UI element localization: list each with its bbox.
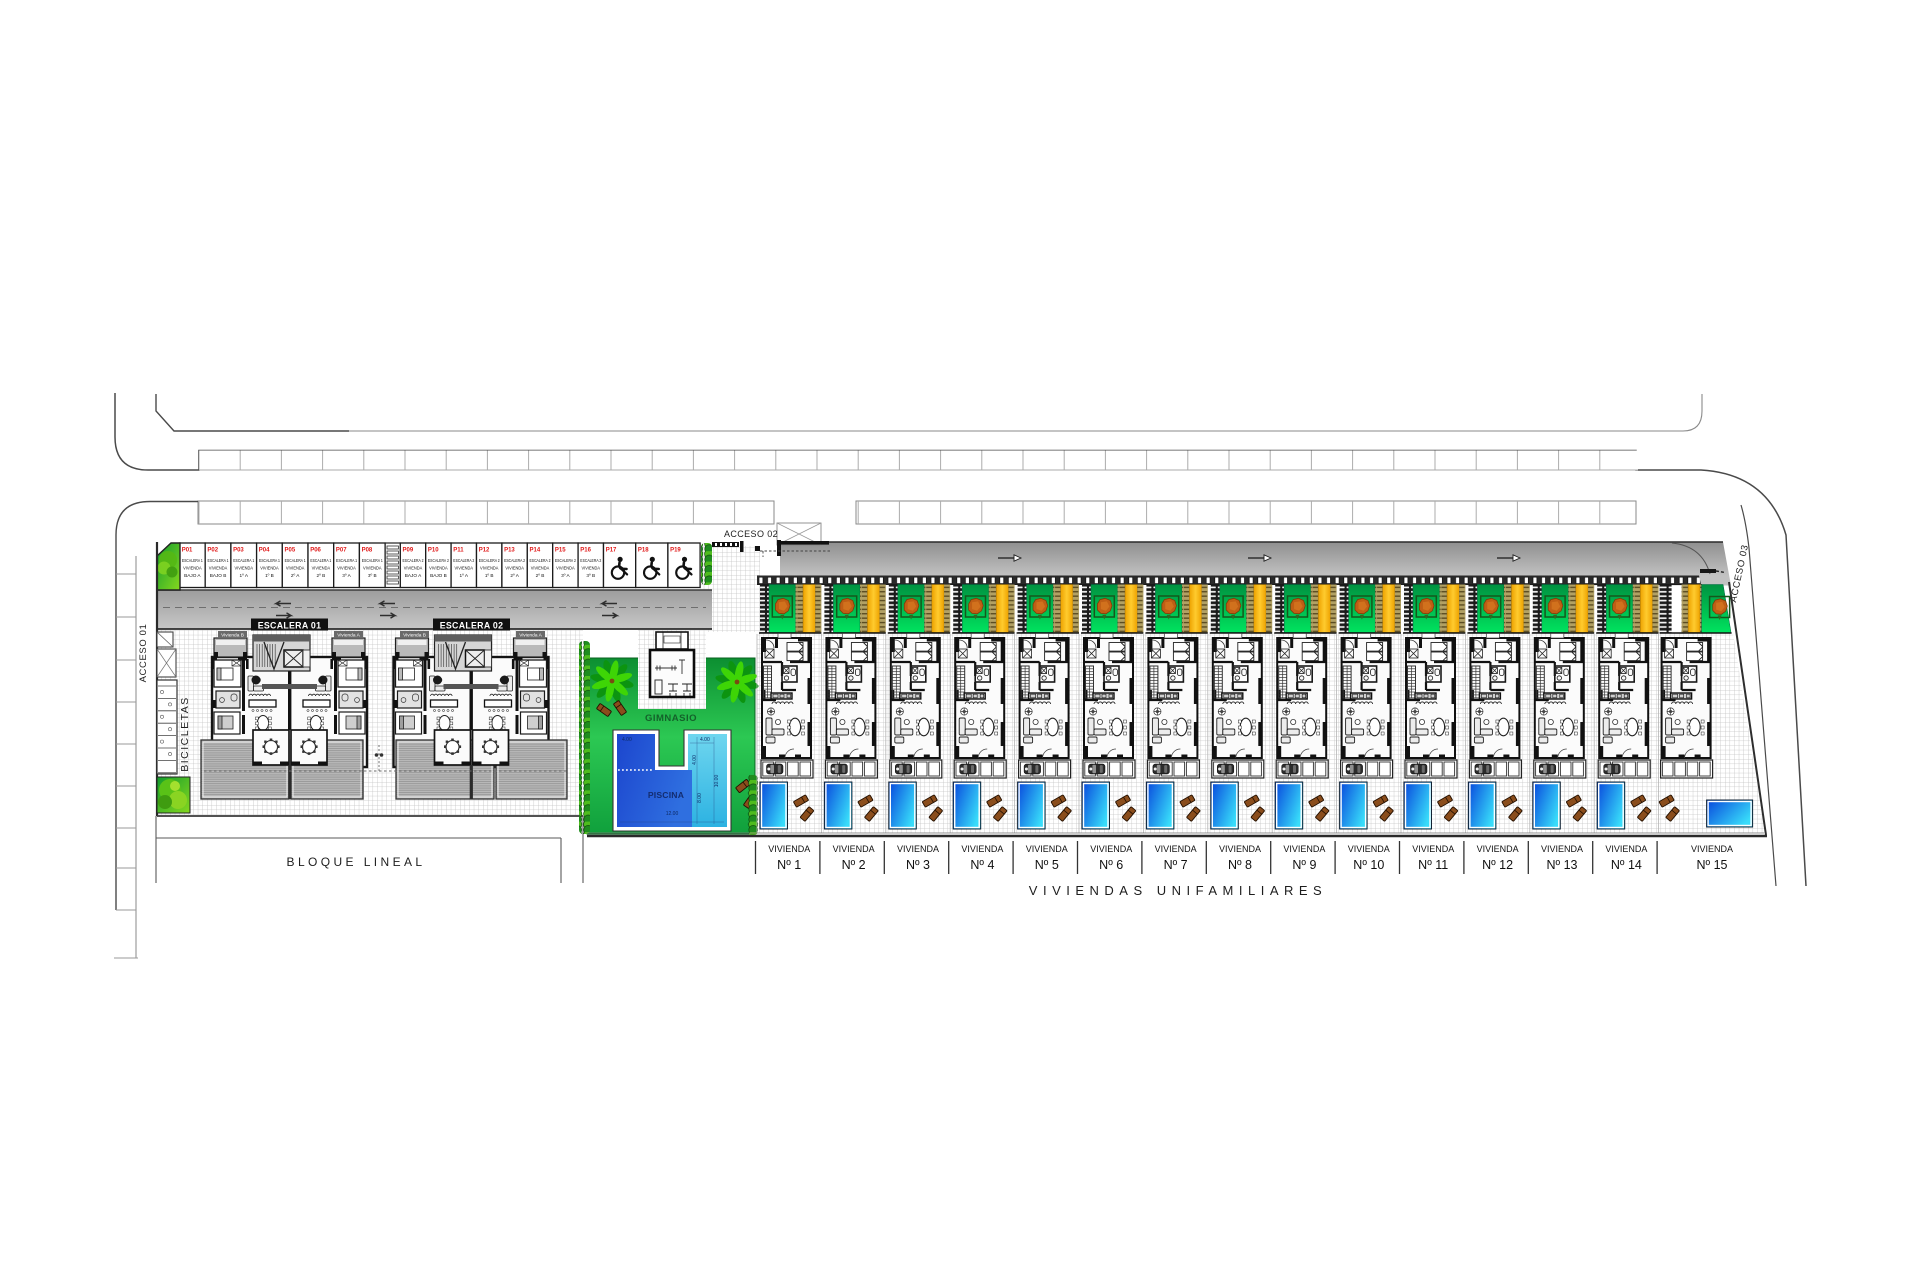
svg-text:P01: P01: [182, 548, 193, 554]
svg-text:P16: P16: [580, 548, 591, 554]
svg-text:10.00: 10.00: [714, 775, 720, 788]
svg-text:P11: P11: [453, 548, 464, 554]
svg-text:VIVIENDA: VIVIENDA: [337, 566, 356, 571]
svg-text:Nº 4: Nº 4: [970, 858, 994, 872]
svg-text:Nº 7: Nº 7: [1164, 858, 1188, 872]
svg-text:4.00: 4.00: [692, 755, 698, 765]
svg-text:BICICLETAS: BICICLETAS: [179, 696, 191, 772]
svg-text:1º A: 1º A: [240, 573, 249, 578]
svg-text:ESCALERA 2: ESCALERA 2: [479, 558, 500, 563]
svg-text:VIVIENDA: VIVIENDA: [1691, 844, 1733, 854]
svg-text:Nº 5: Nº 5: [1035, 858, 1059, 872]
svg-text:Nº 12: Nº 12: [1482, 858, 1513, 872]
svg-text:Nº 6: Nº 6: [1099, 858, 1123, 872]
svg-text:VIVIENDA: VIVIENDA: [1477, 844, 1519, 854]
svg-text:2º A: 2º A: [510, 573, 519, 578]
svg-text:VIVIENDA: VIVIENDA: [183, 566, 202, 571]
svg-text:VIVIENDA: VIVIENDA: [1605, 844, 1647, 854]
svg-text:GIMNASIO: GIMNASIO: [645, 713, 697, 724]
svg-text:Vivienda A: Vivienda A: [519, 633, 542, 639]
svg-text:ESCALERA 1: ESCALERA 1: [233, 558, 254, 563]
svg-text:ESCALERA 1: ESCALERA 1: [336, 558, 357, 563]
svg-text:P02: P02: [207, 548, 218, 554]
svg-text:P13: P13: [504, 548, 515, 554]
svg-text:ESCALERA 1: ESCALERA 1: [362, 558, 383, 563]
svg-text:P04: P04: [259, 548, 270, 554]
svg-text:VIVIENDA: VIVIENDA: [363, 566, 382, 571]
svg-text:ESCALERA 2: ESCALERA 2: [530, 558, 551, 563]
svg-text:P17: P17: [606, 548, 617, 554]
svg-text:1º B: 1º B: [265, 573, 274, 578]
svg-text:VIVIENDA: VIVIENDA: [1541, 844, 1583, 854]
svg-text:ACCESO 01: ACCESO 01: [138, 624, 149, 683]
svg-text:VIVIENDA: VIVIENDA: [833, 844, 875, 854]
svg-text:VIVIENDA: VIVIENDA: [312, 566, 331, 571]
svg-text:VIVIENDA: VIVIENDA: [235, 566, 254, 571]
svg-text:PISCINA: PISCINA: [648, 790, 684, 800]
svg-text:BAJO B: BAJO B: [430, 573, 447, 578]
svg-text:ESCALERA 1: ESCALERA 1: [285, 558, 306, 563]
svg-text:Vivienda B: Vivienda B: [403, 633, 426, 639]
svg-text:VIVIENDA: VIVIENDA: [1155, 844, 1197, 854]
svg-text:ESCALERA 2: ESCALERA 2: [580, 558, 601, 563]
svg-text:2º B: 2º B: [536, 573, 545, 578]
svg-text:ESCALERA 02: ESCALERA 02: [440, 620, 504, 630]
svg-text:BLOQUE LINEAL: BLOQUE LINEAL: [287, 855, 426, 869]
svg-text:Nº 15: Nº 15: [1697, 858, 1728, 872]
svg-text:3º B: 3º B: [368, 573, 377, 578]
svg-text:Nº 2: Nº 2: [842, 858, 866, 872]
svg-text:P06: P06: [310, 548, 321, 554]
svg-text:Nº 1: Nº 1: [777, 858, 801, 872]
svg-text:ESCALERA 2: ESCALERA 2: [428, 558, 449, 563]
svg-text:VIVIENDA: VIVIENDA: [1219, 844, 1261, 854]
svg-text:8.00: 8.00: [697, 793, 703, 803]
svg-text:P12: P12: [479, 548, 490, 554]
svg-text:VIVIENDA: VIVIENDA: [531, 566, 550, 571]
svg-text:ACCESO 03: ACCESO 03: [1728, 544, 1751, 604]
svg-text:1º B: 1º B: [485, 573, 494, 578]
svg-text:Nº 3: Nº 3: [906, 858, 930, 872]
svg-text:3º A: 3º A: [561, 573, 570, 578]
svg-text:VIVIENDA: VIVIENDA: [1090, 844, 1132, 854]
svg-text:P10: P10: [428, 548, 439, 554]
svg-text:P05: P05: [285, 548, 296, 554]
svg-text:ESCALERA 2: ESCALERA 2: [403, 558, 424, 563]
svg-text:2º B: 2º B: [316, 573, 325, 578]
svg-text:VIVIENDA: VIVIENDA: [1283, 844, 1325, 854]
svg-text:ESCALERA 2: ESCALERA 2: [555, 558, 576, 563]
svg-text:P09: P09: [403, 548, 414, 554]
svg-text:VIVIENDA: VIVIENDA: [1348, 844, 1390, 854]
svg-text:P18: P18: [638, 548, 649, 554]
svg-text:VIVIENDA: VIVIENDA: [961, 844, 1003, 854]
svg-text:12.00: 12.00: [666, 811, 679, 817]
svg-text:VIVIENDA: VIVIENDA: [429, 566, 448, 571]
svg-text:2º A: 2º A: [291, 573, 300, 578]
svg-text:VIVIENDA: VIVIENDA: [1412, 844, 1454, 854]
svg-text:ESCALERA 2: ESCALERA 2: [504, 558, 525, 563]
svg-text:ESCALERA 2: ESCALERA 2: [453, 558, 474, 563]
svg-text:VIVIENDA: VIVIENDA: [480, 566, 499, 571]
svg-text:VIVIENDAS UNIFAMILIARES: VIVIENDAS UNIFAMILIARES: [1029, 883, 1327, 898]
svg-text:3º B: 3º B: [586, 573, 595, 578]
svg-text:Nº 11: Nº 11: [1418, 858, 1448, 872]
svg-text:Nº 8: Nº 8: [1228, 858, 1252, 872]
svg-text:4.00: 4.00: [622, 737, 632, 743]
svg-text:1º A: 1º A: [460, 573, 469, 578]
svg-text:VIVIENDA: VIVIENDA: [260, 566, 279, 571]
svg-text:VIVIENDA: VIVIENDA: [505, 566, 524, 571]
svg-text:ESCALERA 1: ESCALERA 1: [208, 558, 229, 563]
svg-text:ESCALERA 1: ESCALERA 1: [310, 558, 331, 563]
svg-text:BAJO A: BAJO A: [405, 573, 422, 578]
svg-text:Vivienda B: Vivienda B: [221, 633, 244, 639]
svg-text:VIVIENDA: VIVIENDA: [1026, 844, 1068, 854]
svg-text:Nº 10: Nº 10: [1353, 858, 1384, 872]
svg-text:VIVIENDA: VIVIENDA: [897, 844, 939, 854]
svg-text:Nº 14: Nº 14: [1611, 858, 1642, 872]
svg-text:4.00: 4.00: [700, 737, 710, 743]
svg-text:BAJO B: BAJO B: [210, 573, 227, 578]
svg-text:VIVIENDA: VIVIENDA: [404, 566, 423, 571]
svg-text:VIVIENDA: VIVIENDA: [286, 566, 305, 571]
svg-text:ACCESO 02: ACCESO 02: [724, 529, 778, 539]
svg-text:P08: P08: [362, 548, 373, 554]
svg-text:Nº 13: Nº 13: [1547, 858, 1578, 872]
svg-text:ESCALERA 01: ESCALERA 01: [258, 620, 322, 630]
svg-text:BAJO A: BAJO A: [184, 573, 201, 578]
svg-text:ESCALERA 1: ESCALERA 1: [182, 558, 203, 563]
svg-text:VIVIENDA: VIVIENDA: [768, 844, 810, 854]
svg-text:P03: P03: [233, 548, 244, 554]
svg-text:VIVIENDA: VIVIENDA: [455, 566, 474, 571]
svg-text:VIVIENDA: VIVIENDA: [556, 566, 575, 571]
svg-text:Vivienda A: Vivienda A: [337, 633, 360, 639]
svg-text:Nº 9: Nº 9: [1292, 858, 1316, 872]
svg-text:P19: P19: [670, 548, 681, 554]
svg-text:3º A: 3º A: [342, 573, 351, 578]
svg-text:P07: P07: [336, 548, 347, 554]
svg-text:VIVIENDA: VIVIENDA: [209, 566, 228, 571]
svg-text:ESCALERA 1: ESCALERA 1: [259, 558, 280, 563]
svg-text:P15: P15: [555, 548, 566, 554]
svg-text:P14: P14: [530, 548, 541, 554]
svg-text:VIVIENDA: VIVIENDA: [582, 566, 601, 571]
